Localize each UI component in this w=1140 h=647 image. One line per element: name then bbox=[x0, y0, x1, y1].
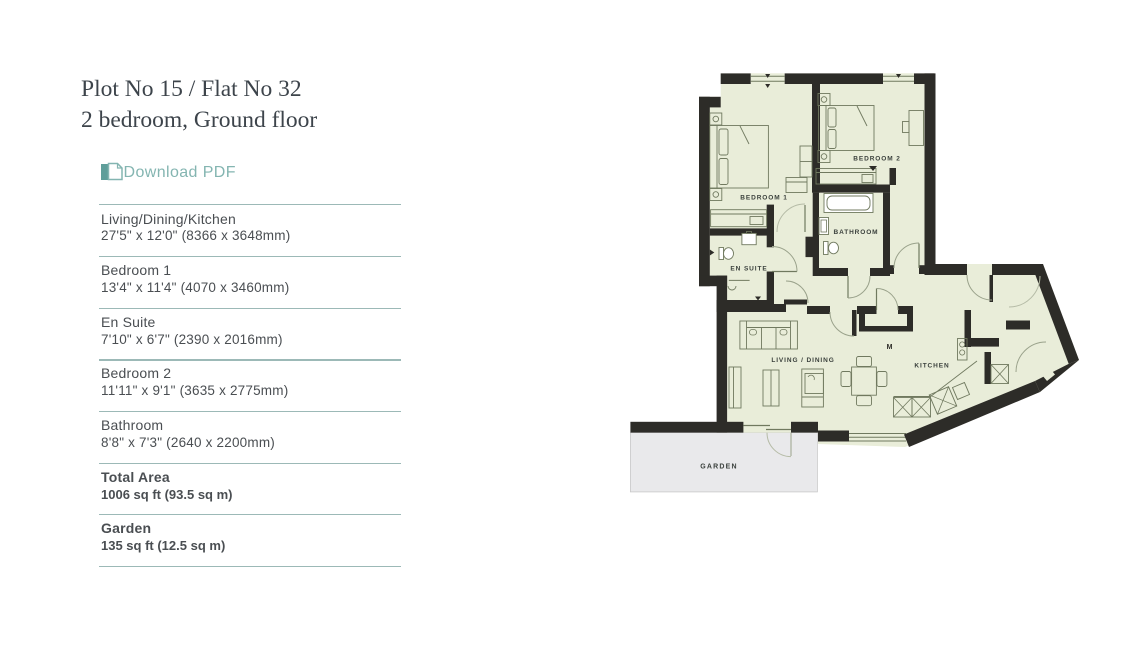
svg-text:LIVING / DINING: LIVING / DINING bbox=[771, 357, 834, 364]
svg-text:EN SUITE: EN SUITE bbox=[730, 266, 767, 273]
svg-text:KITCHEN: KITCHEN bbox=[914, 363, 949, 370]
svg-text:GARDEN: GARDEN bbox=[700, 464, 738, 471]
svg-text:BEDROOM 2: BEDROOM 2 bbox=[853, 156, 900, 163]
svg-text:BATHROOM: BATHROOM bbox=[834, 229, 879, 236]
svg-text:BEDROOM 1: BEDROOM 1 bbox=[740, 195, 787, 202]
svg-text:M: M bbox=[887, 344, 893, 351]
